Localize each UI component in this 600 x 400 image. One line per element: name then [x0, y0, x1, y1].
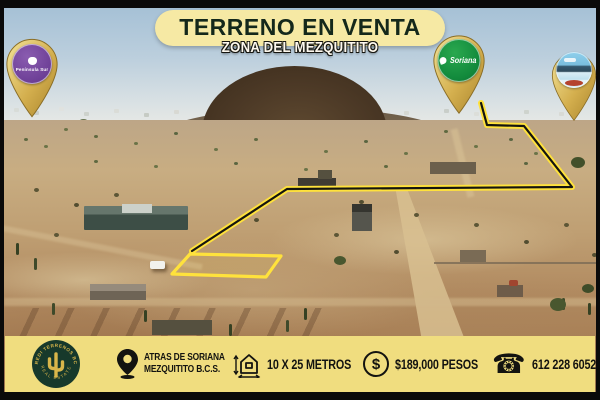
aerial-photo	[4, 8, 596, 392]
dollar-icon: $	[363, 351, 389, 377]
shed-mid	[298, 178, 336, 191]
flyer-root: TERRENO EN VENTA ZONA DEL MEZQUITITO Pen…	[0, 0, 600, 400]
phone-icon: ☎	[492, 351, 526, 378]
phone-item: ☎ 612 228 6052	[492, 336, 600, 392]
soriana-swirl-icon	[439, 56, 448, 65]
emblem-red-banner-detail	[565, 80, 583, 86]
peninsula-sur-mark-icon	[28, 57, 37, 65]
location-pin-icon	[117, 349, 138, 379]
map-pin-soriana: Soriana	[430, 33, 488, 116]
footer-info-bar: CREDI TERRENOS BCS REAL ESTATE ATRAS DE …	[5, 336, 595, 392]
water-tank-tower	[352, 204, 372, 231]
building-right	[430, 162, 476, 174]
peninsula-sur-label: Península Sur	[16, 67, 49, 72]
price-text: $189,000 PESOS	[395, 357, 478, 372]
banner: TERRENO EN VENTA ZONA DEL MEZQUITITO	[0, 10, 600, 56]
school-emblem-icon	[556, 52, 592, 88]
emblem-cloud-detail	[564, 58, 576, 62]
house-dimensions-icon	[233, 350, 261, 378]
red-roof-detail	[509, 280, 518, 286]
dollar-symbol: $	[372, 356, 380, 373]
location-line2: MEZQUITITO B.C.S.	[144, 364, 225, 376]
house-bottom-mid	[497, 285, 523, 297]
fence-line	[434, 262, 596, 264]
location-item: ATRAS DE SORIANA MEZQUITITO B.C.S.	[117, 336, 245, 392]
price-item: $ $189,000 PESOS	[363, 336, 499, 392]
soriana-label: Soriana	[450, 56, 476, 65]
white-car	[150, 261, 165, 269]
size-text: 10 X 25 METROS	[267, 357, 351, 372]
location-line1: ATRAS DE SORIANA	[144, 352, 225, 364]
shack-bottom-left	[152, 320, 212, 335]
map-pin-peninsula-sur: Península Sur	[3, 37, 61, 119]
map-pin-emblem	[549, 46, 599, 128]
soriana-logo: Soriana	[438, 39, 481, 82]
house-bottom-left	[90, 284, 146, 300]
building-white-left	[122, 204, 152, 213]
phone-number: 612 228 6052	[532, 357, 596, 372]
peninsula-sur-logo: Península Sur	[12, 44, 52, 84]
brand-logo: CREDI TERRENOS BCS REAL ESTATE	[31, 339, 81, 389]
house-right	[460, 250, 486, 262]
shed-mid-roof	[318, 170, 332, 179]
size-item: 10 X 25 METROS	[233, 336, 372, 392]
